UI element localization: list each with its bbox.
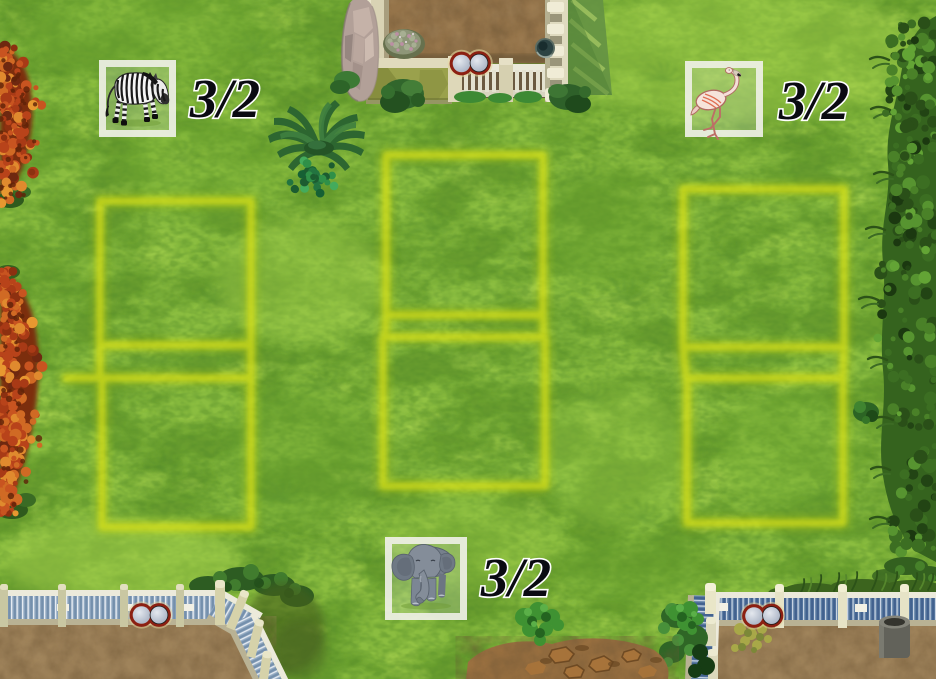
svg-text:3/2: 3/2 — [480, 547, 551, 608]
svg-text:3/2: 3/2 — [189, 68, 260, 129]
svg-text:3/2: 3/2 — [778, 70, 849, 131]
